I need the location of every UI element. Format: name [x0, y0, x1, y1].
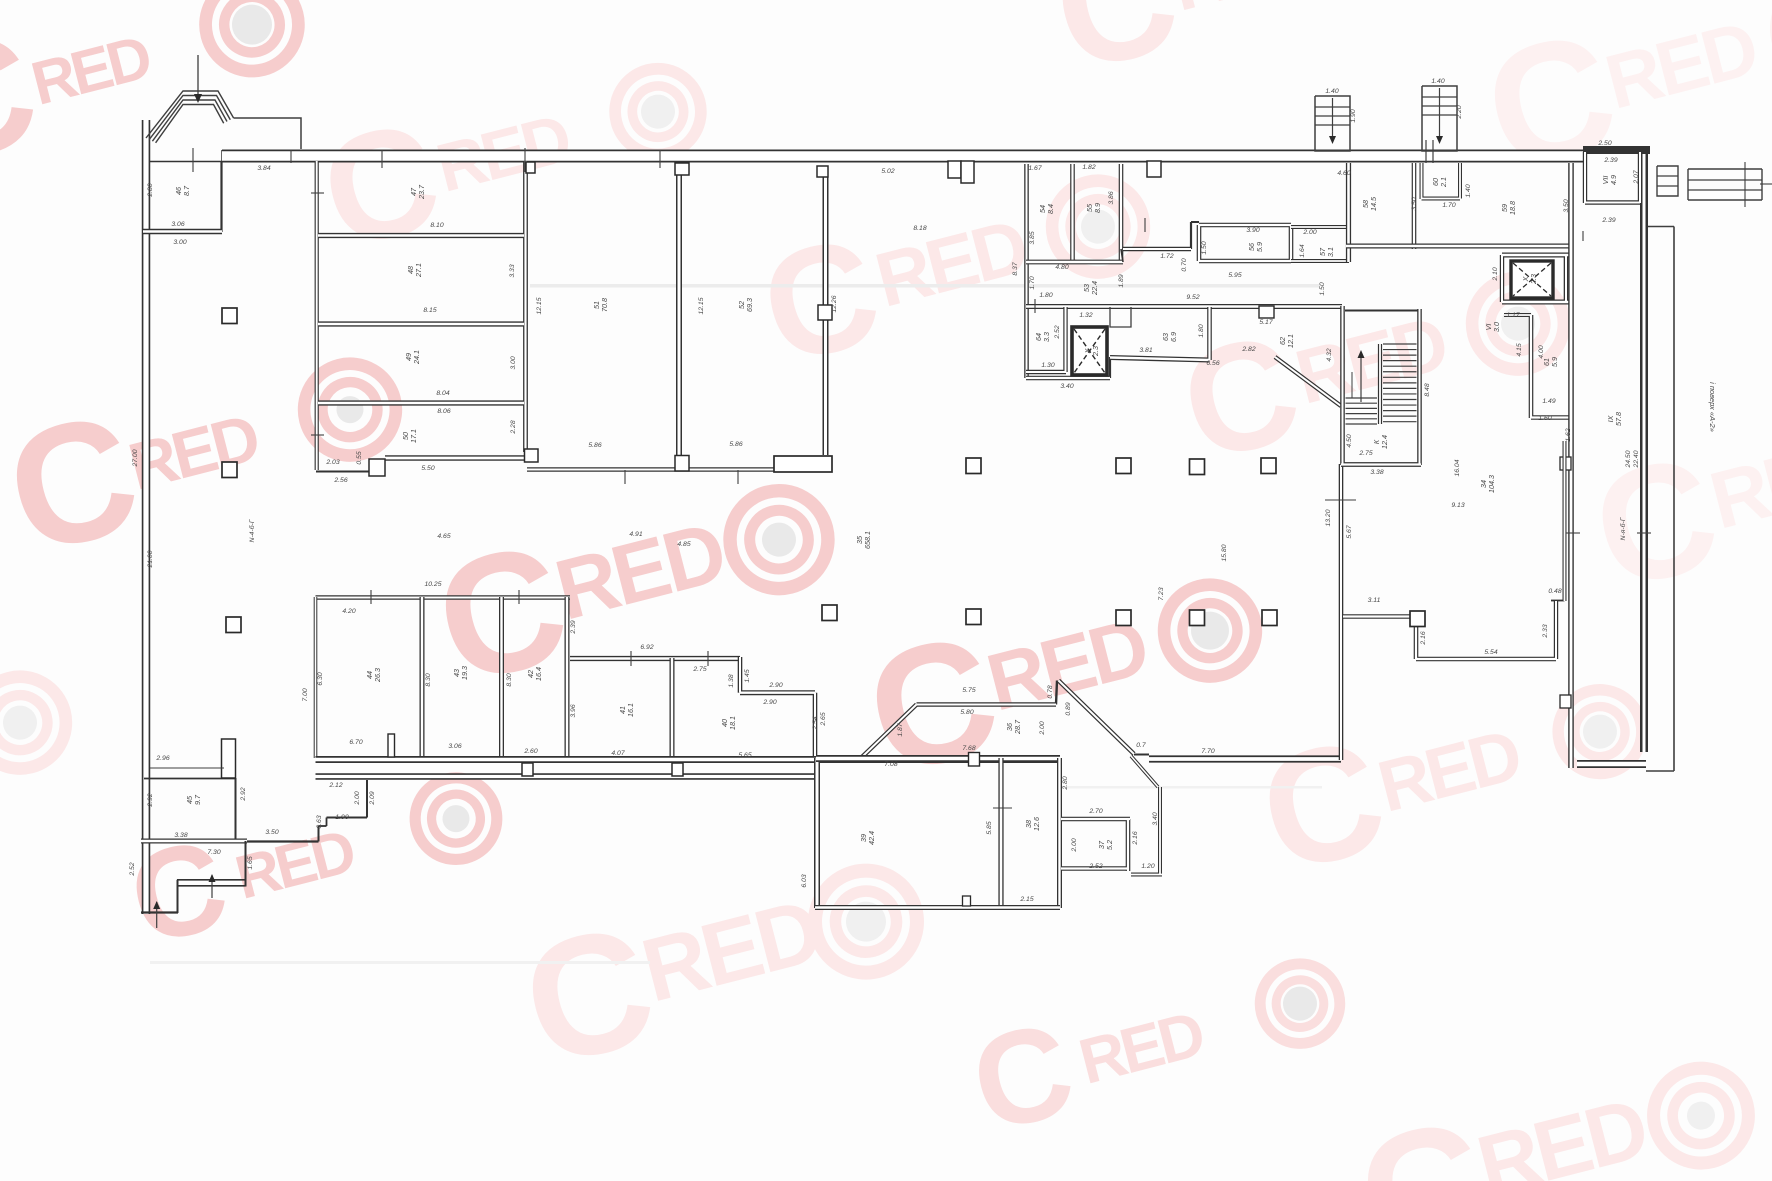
svg-text:3.11: 3.11	[1368, 597, 1381, 604]
svg-text:1.89: 1.89	[1118, 274, 1125, 287]
svg-text:2.16: 2.16	[1420, 631, 1427, 645]
svg-text:1.82: 1.82	[1082, 164, 1095, 171]
svg-text:1.30: 1.30	[1041, 362, 1054, 369]
svg-text:6.70: 6.70	[349, 739, 362, 746]
svg-text:2.3: 2.3	[1529, 274, 1538, 285]
svg-text:і поверх «А-2»: і поверх «А-2»	[1708, 382, 1717, 432]
svg-text:2.80: 2.80	[147, 183, 154, 197]
svg-text:16.04: 16.04	[1454, 459, 1461, 476]
svg-text:4.9: 4.9	[1609, 175, 1618, 185]
svg-text:7.23: 7.23	[1158, 587, 1165, 600]
svg-text:0.63: 0.63	[316, 815, 323, 828]
svg-text:1.80: 1.80	[1039, 292, 1052, 299]
svg-text:10.25: 10.25	[424, 581, 441, 588]
svg-text:7.00: 7.00	[302, 688, 309, 701]
svg-text:3.06: 3.06	[448, 743, 461, 750]
svg-text:27.00: 27.00	[132, 449, 139, 467]
svg-text:2.00: 2.00	[354, 791, 361, 805]
svg-text:1.80: 1.80	[1198, 324, 1205, 337]
svg-text:658.1: 658.1	[863, 531, 872, 549]
svg-text:4.32: 4.32	[1326, 348, 1333, 361]
svg-text:1.90: 1.90	[1350, 109, 1357, 122]
svg-text:18.8: 18.8	[1508, 201, 1517, 215]
svg-text:2.00: 2.00	[1302, 229, 1316, 236]
svg-text:5.80: 5.80	[960, 709, 973, 716]
svg-text:3.90: 3.90	[1246, 227, 1259, 234]
svg-text:3.00: 3.00	[510, 356, 517, 369]
svg-text:9.52: 9.52	[1186, 294, 1199, 301]
svg-text:5.17: 5.17	[1259, 319, 1272, 326]
svg-text:12.15: 12.15	[536, 297, 543, 314]
svg-text:4.15: 4.15	[1516, 343, 1523, 356]
svg-text:2.15: 2.15	[1019, 896, 1033, 903]
svg-text:3.00: 3.00	[173, 239, 186, 246]
svg-text:12.15: 12.15	[698, 297, 705, 314]
svg-text:2.75: 2.75	[1358, 450, 1372, 457]
svg-text:1.45: 1.45	[744, 669, 751, 682]
svg-text:2.10: 2.10	[1492, 267, 1499, 281]
svg-text:7.70: 7.70	[1201, 748, 1214, 755]
svg-text:5.95: 5.95	[1228, 272, 1241, 279]
svg-text:8.06: 8.06	[437, 408, 450, 415]
svg-text:2.28: 2.28	[510, 420, 517, 434]
svg-text:24.50: 24.50	[1625, 450, 1632, 468]
svg-text:5.75: 5.75	[962, 687, 975, 694]
svg-text:3.3: 3.3	[1042, 332, 1051, 342]
svg-text:1.65: 1.65	[247, 856, 254, 869]
svg-text:3.0: 3.0	[1492, 322, 1501, 332]
svg-text:2.12: 2.12	[328, 782, 342, 789]
svg-text:0.78: 0.78	[1047, 685, 1054, 698]
svg-text:3.86: 3.86	[1108, 191, 1115, 204]
svg-text:28.7: 28.7	[1013, 719, 1022, 735]
svg-text:4.91: 4.91	[629, 531, 642, 538]
svg-text:3.85: 3.85	[1029, 231, 1036, 244]
svg-text:N-4-б-Г: N-4-б-Г	[248, 518, 256, 542]
svg-text:16.1: 16.1	[626, 703, 635, 717]
svg-text:9.7: 9.7	[193, 794, 202, 805]
svg-text:5.86: 5.86	[588, 442, 601, 449]
svg-text:2.54: 2.54	[812, 716, 819, 730]
svg-text:22.40: 22.40	[1633, 450, 1640, 468]
svg-text:1.64: 1.64	[1299, 244, 1306, 257]
svg-text:2.39: 2.39	[570, 620, 577, 634]
svg-text:17.1: 17.1	[409, 429, 418, 443]
svg-text:2.03: 2.03	[325, 459, 339, 466]
svg-text:2.90: 2.90	[768, 682, 782, 689]
svg-text:3.40: 3.40	[1152, 812, 1159, 825]
svg-text:3.81: 3.81	[1139, 347, 1152, 354]
svg-text:3.96: 3.96	[570, 704, 577, 717]
svg-text:12.6: 12.6	[1032, 817, 1041, 831]
svg-text:4.20: 4.20	[342, 608, 355, 615]
svg-text:2.16: 2.16	[1132, 831, 1139, 845]
svg-text:5.86: 5.86	[729, 441, 742, 448]
svg-text:5.9: 5.9	[1550, 357, 1559, 367]
svg-text:2.75: 2.75	[692, 666, 706, 673]
svg-text:15.80: 15.80	[1221, 544, 1228, 561]
svg-text:1.20: 1.20	[1141, 863, 1154, 870]
svg-text:2.39: 2.39	[1603, 157, 1617, 164]
svg-text:3.1: 3.1	[1326, 247, 1335, 257]
svg-text:N-я-б-Г: N-я-б-Г	[1619, 516, 1627, 540]
svg-text:3.50: 3.50	[1563, 199, 1570, 212]
svg-text:27.1: 27.1	[414, 263, 423, 278]
svg-text:8.37: 8.37	[1012, 262, 1019, 275]
svg-text:8.48: 8.48	[1424, 383, 1431, 396]
svg-text:12.4: 12.4	[1380, 435, 1389, 449]
svg-text:3.84: 3.84	[257, 165, 270, 172]
svg-text:3.50: 3.50	[265, 829, 278, 836]
svg-text:13.20: 13.20	[1325, 509, 1332, 526]
svg-text:1.62: 1.62	[1565, 428, 1572, 441]
svg-text:12.1: 12.1	[1286, 334, 1295, 348]
svg-text:22.4: 22.4	[1090, 281, 1099, 296]
svg-text:1.70: 1.70	[1029, 276, 1036, 289]
svg-text:6.9: 6.9	[1169, 332, 1178, 342]
svg-text:104.3: 104.3	[1487, 475, 1496, 493]
svg-text:4.85: 4.85	[677, 541, 690, 548]
svg-text:8.10: 8.10	[430, 222, 443, 229]
svg-text:2.52: 2.52	[129, 862, 136, 876]
svg-text:7.30: 7.30	[207, 849, 220, 856]
svg-text:8.9: 8.9	[1093, 203, 1102, 213]
svg-text:2.70: 2.70	[1088, 808, 1102, 815]
svg-text:1.40: 1.40	[1431, 78, 1444, 85]
svg-text:2.52: 2.52	[1054, 325, 1061, 339]
svg-text:24.1: 24.1	[412, 350, 421, 365]
svg-text:8.7: 8.7	[182, 185, 191, 196]
svg-text:1.50: 1.50	[1201, 241, 1208, 254]
svg-text:2.39: 2.39	[1601, 217, 1615, 224]
svg-text:4.00: 4.00	[1538, 345, 1545, 358]
svg-text:5.85: 5.85	[986, 821, 993, 834]
svg-text:21.00: 21.00	[147, 550, 154, 568]
svg-text:2.00: 2.00	[1039, 721, 1046, 735]
svg-text:2.50: 2.50	[1597, 140, 1611, 147]
svg-text:1.17: 1.17	[1506, 312, 1519, 319]
svg-text:1.32: 1.32	[1079, 312, 1092, 319]
svg-text:6.56: 6.56	[1206, 360, 1219, 367]
svg-text:0.7: 0.7	[1136, 742, 1146, 749]
svg-text:3.38: 3.38	[1370, 469, 1383, 476]
svg-text:1.50: 1.50	[1319, 282, 1326, 295]
svg-text:2.56: 2.56	[333, 477, 347, 484]
svg-text:5.2: 5.2	[1105, 840, 1114, 850]
svg-text:8.4: 8.4	[1046, 204, 1055, 214]
svg-text:2.60: 2.60	[523, 748, 537, 755]
svg-text:8.04: 8.04	[436, 390, 449, 397]
svg-text:5.9: 5.9	[1255, 242, 1264, 252]
svg-text:4.60: 4.60	[1337, 170, 1350, 177]
svg-text:3.06: 3.06	[171, 221, 184, 228]
svg-text:5.65: 5.65	[738, 752, 751, 759]
svg-text:8.18: 8.18	[913, 225, 926, 232]
svg-text:2.00: 2.00	[1071, 838, 1078, 852]
svg-text:1.72: 1.72	[1160, 253, 1173, 260]
svg-text:1.90: 1.90	[335, 814, 348, 821]
svg-text:1.60: 1.60	[1538, 415, 1551, 422]
svg-text:2.96: 2.96	[155, 755, 169, 762]
svg-text:1.87: 1.87	[897, 723, 904, 736]
svg-text:2.3: 2.3	[1091, 346, 1100, 357]
svg-text:5.67: 5.67	[1346, 525, 1353, 538]
svg-text:3.40: 3.40	[1060, 383, 1073, 390]
svg-text:2.90: 2.90	[762, 699, 776, 706]
svg-text:5.54: 5.54	[1484, 649, 1497, 656]
svg-text:3.50: 3.50	[1411, 197, 1418, 210]
svg-text:18.1: 18.1	[728, 716, 737, 730]
svg-text:0.55: 0.55	[356, 451, 363, 464]
svg-text:5.50: 5.50	[421, 465, 434, 472]
svg-text:42.4: 42.4	[867, 831, 876, 845]
svg-text:2.82: 2.82	[1241, 346, 1255, 353]
svg-text:9.13: 9.13	[1451, 502, 1464, 509]
svg-text:1.40: 1.40	[1465, 184, 1472, 197]
svg-text:1.70: 1.70	[1442, 202, 1455, 209]
svg-text:23.7: 23.7	[417, 184, 426, 200]
svg-text:1.67: 1.67	[1028, 165, 1041, 172]
svg-text:6.30: 6.30	[317, 672, 324, 685]
svg-text:2.52: 2.52	[1088, 863, 1102, 870]
svg-text:0.89: 0.89	[1065, 702, 1072, 715]
svg-text:69.3: 69.3	[745, 298, 754, 312]
svg-text:8.30: 8.30	[425, 673, 432, 686]
svg-text:16.4: 16.4	[534, 667, 543, 681]
svg-text:0.48: 0.48	[1548, 588, 1561, 595]
svg-text:8.30: 8.30	[506, 673, 513, 686]
svg-text:26.3: 26.3	[373, 668, 382, 683]
svg-text:4.80: 4.80	[1055, 264, 1068, 271]
svg-text:4.65: 4.65	[437, 533, 450, 540]
svg-text:0.70: 0.70	[1181, 258, 1188, 271]
svg-text:70.8: 70.8	[600, 298, 609, 312]
svg-text:2.33: 2.33	[1542, 624, 1549, 638]
svg-text:14.5: 14.5	[1369, 196, 1378, 211]
svg-text:2.1: 2.1	[1439, 177, 1448, 188]
svg-text:4.07: 4.07	[611, 750, 624, 757]
svg-text:8.15: 8.15	[423, 307, 436, 314]
svg-text:6.92: 6.92	[640, 644, 653, 651]
svg-text:2.65: 2.65	[820, 712, 827, 726]
svg-text:2.92: 2.92	[240, 787, 247, 801]
svg-text:5.02: 5.02	[881, 168, 894, 175]
svg-text:1.40: 1.40	[1325, 88, 1338, 95]
svg-text:12.26: 12.26	[831, 295, 838, 312]
svg-text:1.49: 1.49	[1542, 398, 1555, 405]
svg-text:19.3: 19.3	[460, 666, 469, 680]
svg-text:57.8: 57.8	[1614, 412, 1623, 426]
svg-text:2.09: 2.09	[369, 791, 376, 805]
svg-text:4.50: 4.50	[1346, 434, 1353, 447]
svg-text:2.80: 2.80	[1062, 776, 1069, 790]
svg-text:2.07: 2.07	[1633, 170, 1640, 184]
svg-text:1.38: 1.38	[728, 674, 735, 687]
svg-text:3.38: 3.38	[174, 832, 187, 839]
svg-text:7.08: 7.08	[884, 761, 897, 768]
svg-text:2.20: 2.20	[1456, 105, 1463, 119]
svg-text:7.68: 7.68	[962, 745, 975, 752]
svg-text:3.33: 3.33	[509, 264, 516, 277]
svg-text:6.03: 6.03	[801, 874, 808, 887]
svg-text:2.92: 2.92	[147, 793, 154, 807]
